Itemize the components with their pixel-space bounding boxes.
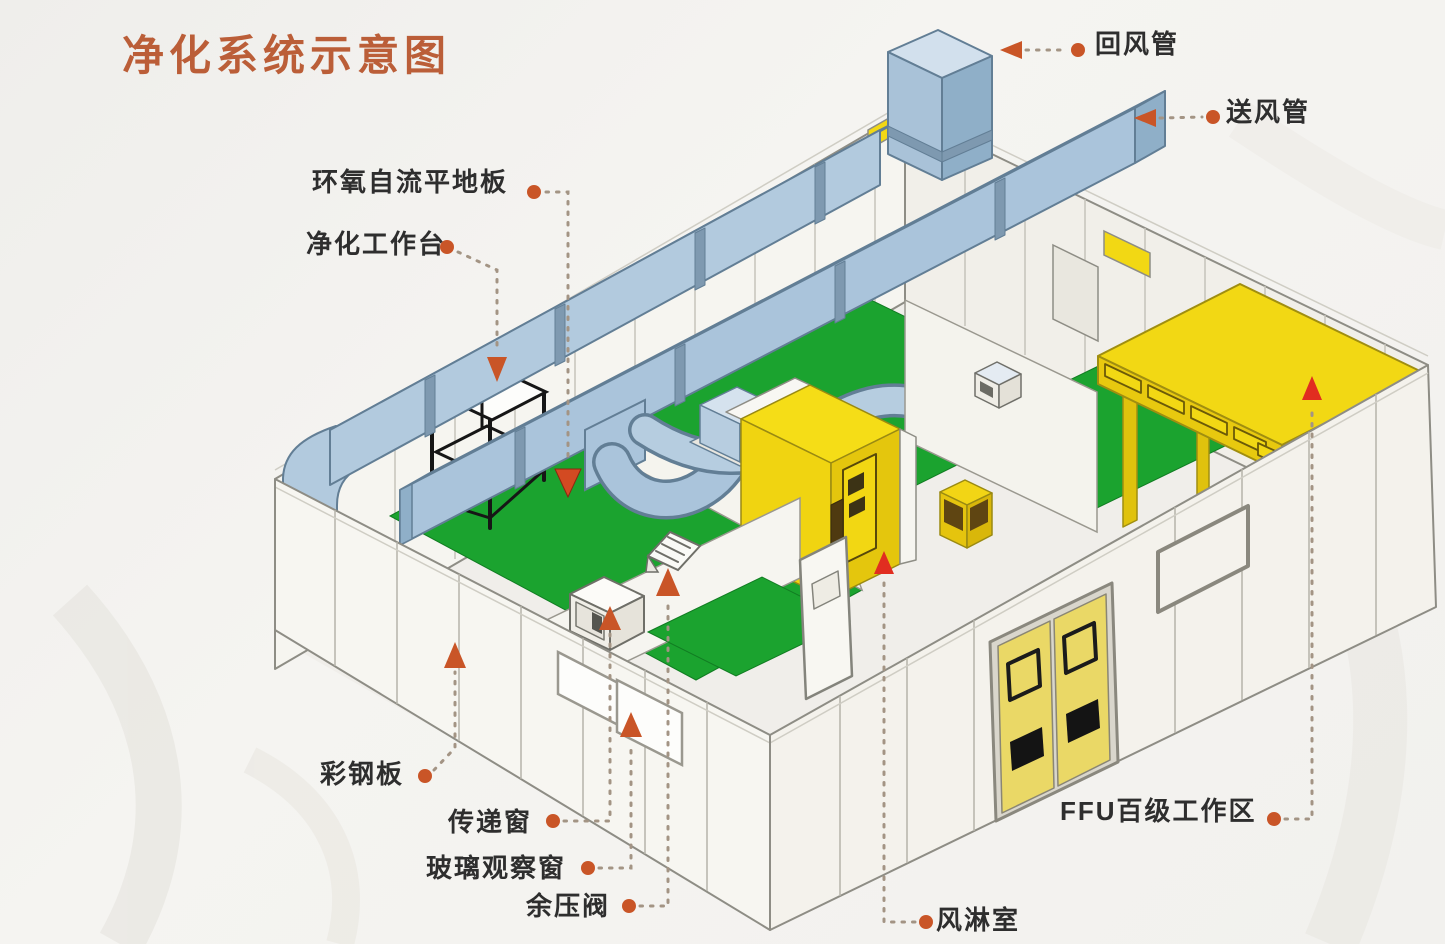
diagram-canvas: 净化系统示意图 回风管 送风管 环氧自流平地板 净化工作台 彩钢板 传递窗 玻璃… bbox=[0, 0, 1445, 944]
label-clean-workbench: 净化工作台 bbox=[306, 230, 446, 259]
label-supply-air-duct: 送风管 bbox=[1226, 98, 1310, 127]
label-return-air-duct: 回风管 bbox=[1095, 30, 1179, 59]
label-ffu-class100-work-area: FFU百级工作区 bbox=[1060, 797, 1257, 826]
return-duct-riser bbox=[888, 30, 992, 180]
page-title: 净化系统示意图 bbox=[122, 22, 451, 83]
vestibule-door bbox=[800, 537, 852, 699]
label-color-steel-panel: 彩钢板 bbox=[320, 760, 404, 789]
label-air-shower-room: 风淋室 bbox=[936, 906, 1020, 935]
label-transfer-window: 传递窗 bbox=[448, 808, 532, 837]
label-epoxy-self-leveling-floor: 环氧自流平地板 bbox=[312, 168, 508, 197]
yellow-cabinet bbox=[940, 480, 992, 548]
label-glass-observation-window: 玻璃观察窗 bbox=[426, 854, 566, 883]
label-residual-pressure-valve: 余压阀 bbox=[526, 892, 610, 921]
